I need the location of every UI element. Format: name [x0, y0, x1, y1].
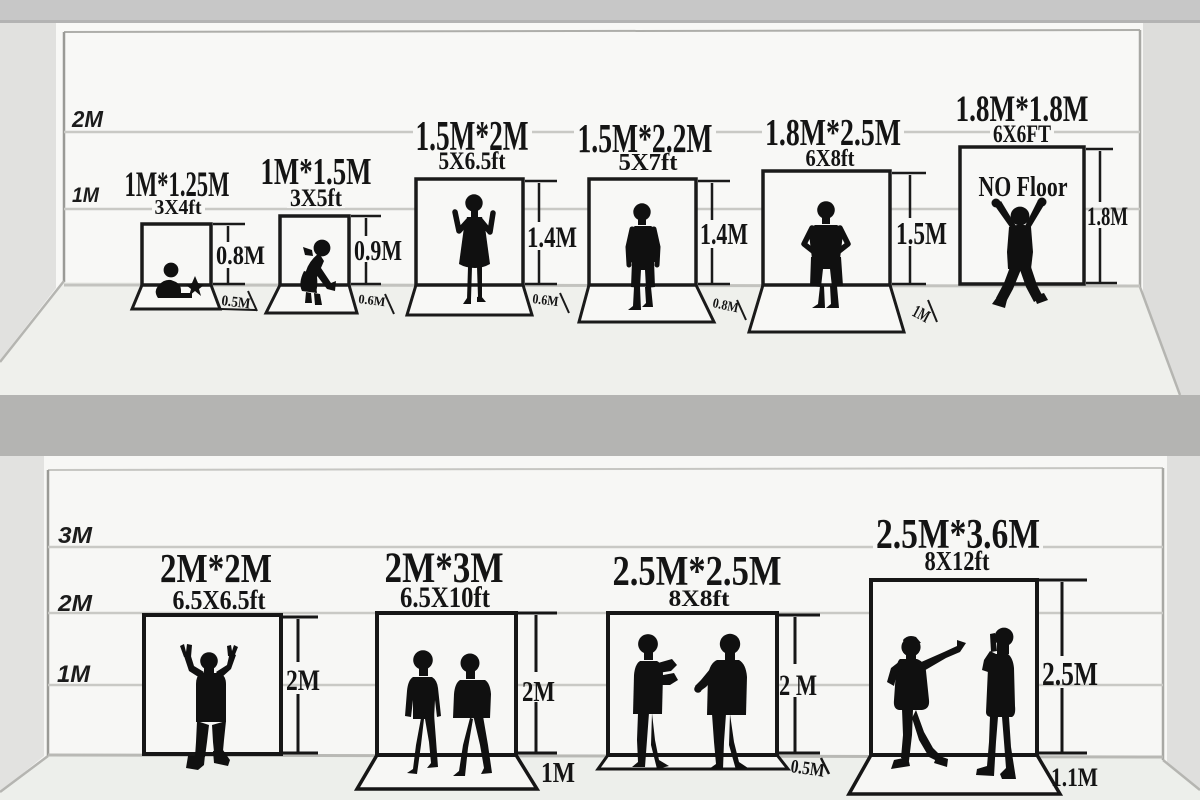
svg-text:1M: 1M — [57, 661, 91, 688]
svg-text:0.6M: 0.6M — [532, 292, 560, 310]
svg-text:0.8M: 0.8M — [216, 241, 265, 270]
svg-text:2.5M: 2.5M — [1042, 656, 1098, 693]
svg-text:3X4ft: 3X4ft — [155, 195, 202, 219]
svg-text:5X6.5ft: 5X6.5ft — [439, 148, 507, 175]
svg-text:3X5ft: 3X5ft — [290, 185, 343, 212]
svg-text:1.1M: 1.1M — [1051, 763, 1098, 792]
svg-text:NO Floor: NO Floor — [979, 172, 1068, 203]
svg-text:1.4M: 1.4M — [700, 216, 748, 251]
svg-text:1.4M: 1.4M — [527, 221, 577, 254]
svg-text:8X12ft: 8X12ft — [925, 546, 990, 576]
svg-text:6X8ft: 6X8ft — [806, 146, 855, 172]
svg-text:2M: 2M — [71, 106, 104, 132]
svg-text:1.5M: 1.5M — [896, 215, 947, 251]
svg-text:3M: 3M — [58, 522, 93, 548]
svg-text:1M: 1M — [541, 757, 575, 789]
svg-text:2M: 2M — [286, 664, 320, 697]
svg-text:5X7ft: 5X7ft — [619, 150, 678, 176]
svg-text:2M: 2M — [522, 677, 555, 708]
svg-text:8X8ft: 8X8ft — [669, 586, 730, 611]
svg-text:6.5X6.5ft: 6.5X6.5ft — [173, 585, 266, 615]
svg-text:2M: 2M — [57, 590, 93, 616]
svg-text:2 M: 2 M — [779, 669, 817, 702]
svg-text:1M: 1M — [72, 184, 99, 207]
svg-text:6X6FT: 6X6FT — [993, 121, 1051, 148]
svg-text:0.9M: 0.9M — [354, 236, 402, 267]
svg-text:1.8M: 1.8M — [1087, 202, 1128, 231]
svg-text:6.5X10ft: 6.5X10ft — [400, 581, 490, 614]
